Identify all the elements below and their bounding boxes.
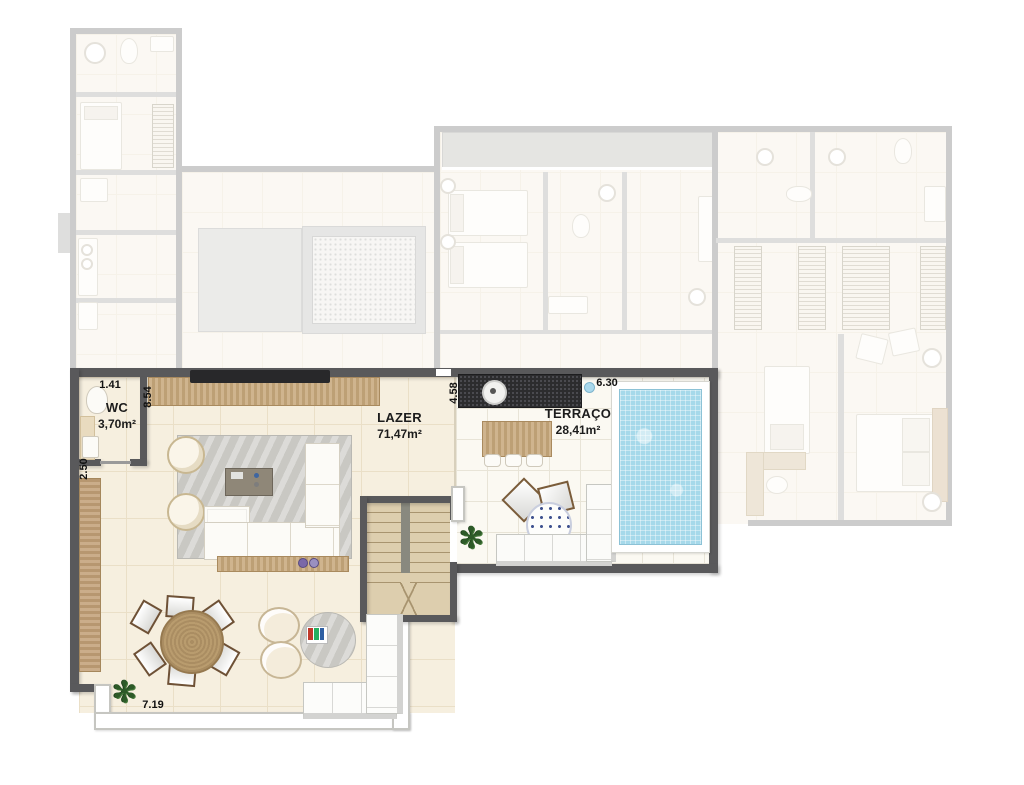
sink-icon (548, 296, 588, 314)
dimension-wc-depth: 2.50 (78, 452, 90, 486)
pillow (450, 194, 464, 232)
wall-right (709, 368, 718, 573)
wardrobe (734, 246, 762, 330)
armchair (167, 493, 205, 531)
room-name: TERRAÇO (528, 406, 628, 423)
kitchen-sink-icon (78, 302, 98, 330)
toilet-icon (786, 186, 812, 202)
faded-wall (838, 334, 844, 520)
wall-top (70, 368, 718, 377)
desk (746, 452, 764, 516)
pillow (84, 106, 118, 120)
shower-icon (756, 148, 774, 166)
burner-icon (81, 244, 93, 256)
faded-wall (70, 28, 182, 34)
decor-icon (309, 558, 319, 568)
dimension-terrace-width: 6.30 (590, 377, 624, 389)
stair-landing (367, 583, 450, 615)
wall-wc-bottom-stub (130, 459, 147, 466)
door-opening (436, 369, 451, 376)
pillow (902, 452, 930, 486)
faded-wall (622, 172, 627, 330)
drain-icon (490, 388, 496, 394)
burner-icon (81, 258, 93, 270)
pillow (450, 246, 464, 284)
faded-wall (440, 330, 716, 334)
wall-left (70, 368, 79, 692)
stair-wall (360, 496, 367, 622)
terrace-door-leaf (451, 486, 465, 522)
plant-icon (459, 524, 489, 558)
egg-chair (260, 641, 302, 679)
stair-divider (401, 503, 410, 573)
floor-plan-canvas: WC 3,70m² LAZER 71,47m² TERRAÇO 28,41m² … (0, 0, 1024, 785)
room-label-lazer: LAZER 71,47m² (352, 410, 447, 442)
room-area: 71,47m² (352, 427, 447, 443)
book-icon (308, 628, 313, 640)
faded-wall (712, 126, 952, 132)
stair-wall (360, 496, 457, 503)
lamp-icon (440, 178, 456, 194)
stair-treads (367, 503, 401, 583)
dimension-living-terrace: 4.58 (448, 376, 460, 410)
wc-door-leaf (100, 461, 131, 464)
wardrobe (842, 246, 890, 330)
decor-icon (254, 473, 259, 478)
outdoor-sofa (366, 614, 403, 714)
faded-wall (76, 230, 176, 235)
wood-deck (79, 478, 101, 672)
pillow (770, 424, 804, 450)
faded-wall (76, 170, 176, 175)
faded-wall (182, 166, 438, 172)
bar-stool (526, 454, 543, 467)
elevator-core (312, 236, 416, 324)
faded-balcony-strip (442, 132, 716, 168)
sofa (305, 443, 340, 528)
room-label-terraco: TERRAÇO 28,41m² (528, 406, 628, 438)
book-icon (320, 628, 324, 640)
faded-wall (716, 238, 946, 243)
pool (619, 389, 702, 545)
dimension-living-top: 8.54 (142, 380, 154, 414)
bench (217, 556, 349, 572)
faded-wall (70, 28, 76, 374)
faded-wall (712, 126, 718, 372)
pillow (902, 418, 930, 452)
balcony-sill (442, 167, 714, 170)
faded-wall (434, 126, 440, 372)
faded-wall (810, 132, 815, 240)
room-name: LAZER (352, 410, 447, 427)
stair-wall (450, 562, 457, 622)
room-label-wc: WC 3,70m² (92, 400, 142, 432)
headboard (932, 408, 948, 502)
lamp-icon (922, 492, 942, 512)
lamp-icon (440, 234, 456, 250)
decor-icon (254, 482, 259, 487)
sink-icon (924, 186, 946, 222)
bar-stool (505, 454, 522, 467)
faded-wall (76, 92, 176, 97)
washer-icon (80, 178, 108, 202)
armchair (167, 436, 205, 474)
bar-counter (458, 374, 582, 408)
stair-treads (410, 503, 450, 583)
room-area: 28,41m² (528, 423, 628, 439)
wardrobe (920, 246, 946, 330)
stair-door-opening (450, 520, 457, 564)
room-name: WC (92, 400, 142, 417)
dimension-wc-width: 1.41 (93, 379, 127, 391)
room-area: 3,70m² (92, 417, 142, 433)
shower-icon (598, 184, 616, 202)
shower-icon (84, 42, 106, 64)
toilet-icon (120, 38, 138, 64)
sink-icon (150, 36, 174, 52)
tray-icon (231, 472, 243, 479)
book-icon (314, 628, 319, 640)
side-table (688, 288, 706, 306)
egg-chair (258, 607, 300, 644)
toilet-icon (894, 138, 912, 164)
lamp-icon (922, 348, 942, 368)
dining-table (160, 610, 224, 674)
dimension-balcony-width: 7.19 (136, 699, 170, 711)
chair (766, 476, 788, 494)
wardrobe (798, 246, 826, 330)
decor-icon (298, 558, 308, 568)
toilet-icon (572, 214, 590, 238)
tv-icon (190, 370, 330, 383)
service-patio (198, 228, 302, 332)
shower-icon (828, 148, 846, 166)
bar-stool (484, 454, 501, 467)
faded-wall (748, 520, 952, 526)
wardrobe (152, 104, 174, 168)
